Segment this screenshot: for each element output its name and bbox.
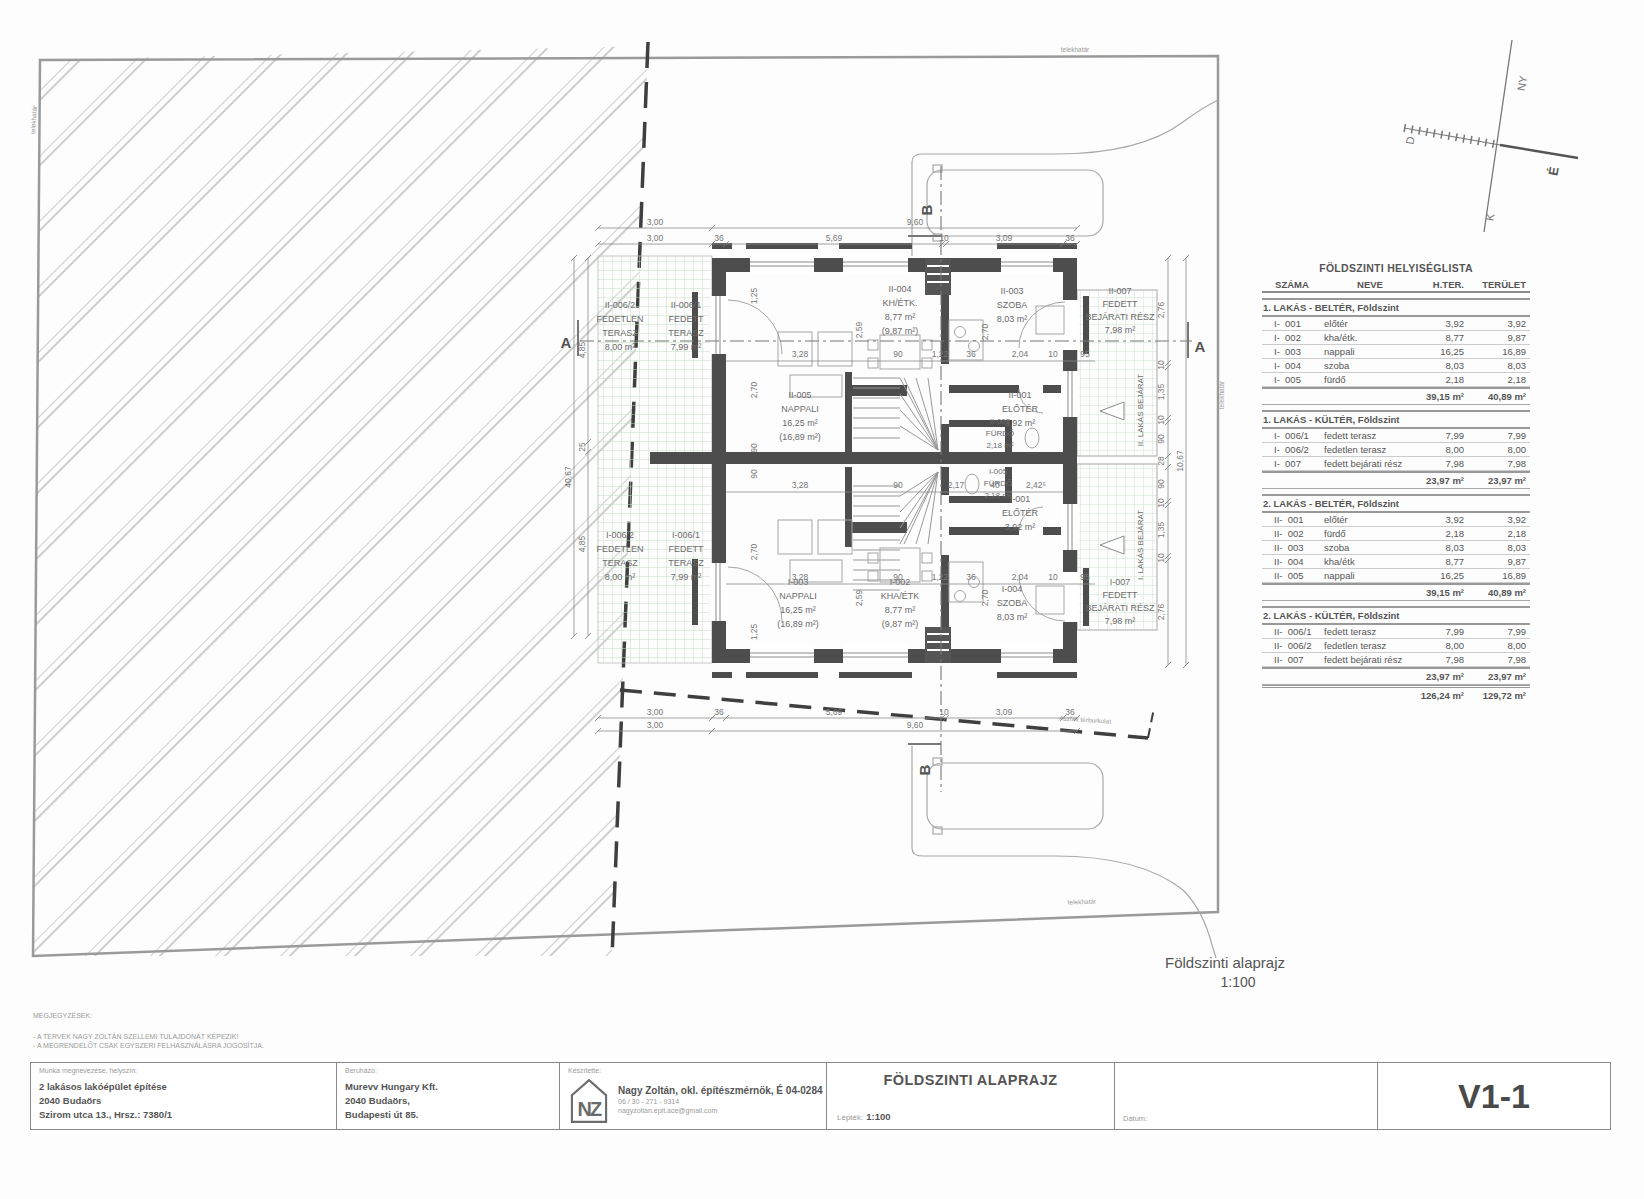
room-label: 8,77 m² (885, 605, 916, 615)
table-row: I- 007fedett bejárati rész7,987,98 (1262, 457, 1530, 471)
room-label: FEDETT (669, 544, 705, 554)
section-subtotal: 23,97 m²23,97 m² (1262, 667, 1530, 685)
room-label: 7,98 m² (1105, 616, 1136, 626)
table-row: II- 006/1fedett terasz7,997,99 (1262, 625, 1530, 639)
compass-north: É (1545, 165, 1561, 176)
entrance-label-1: I. LAKÁS BEJÁRAT (1136, 510, 1145, 580)
dim: 4,85 (577, 535, 587, 552)
party-wall (650, 452, 1077, 464)
dim: 10 (1156, 360, 1166, 370)
table-row: I- 006/1fedett terasz7,997,99 (1262, 429, 1530, 443)
notes: MEGJEGYZÉSEK: - A TERVEK NAGY ZOLTÁN SZE… (33, 1012, 264, 1049)
room-label: TERASZ (668, 558, 704, 568)
dim: 2,70 (980, 589, 990, 606)
dim: 90 (749, 469, 759, 479)
table-row: II- 001előtér3,923,92 (1262, 513, 1530, 527)
drawing-sheet: telekhatár telekhatár telekhatár telekha… (0, 0, 1644, 1199)
boundary-label-left: telekhatár (29, 105, 38, 135)
room-label: FEDETT (669, 314, 705, 324)
dim: 2,42⁵ (1026, 480, 1046, 490)
dim: 2,70 (749, 543, 759, 560)
entrance-label-2: II. LAKÁS BEJÁRAT (1136, 374, 1145, 446)
dim: 1,35 (1156, 383, 1166, 400)
table-row: I- 006/2fedetlen terasz8,008,00 (1262, 443, 1530, 457)
date-label: Dátum: (1123, 1114, 1147, 1123)
dim: 25 (577, 442, 587, 452)
section-heading: 1. LAKÁS - KÜLTÉR, Földszint (1262, 410, 1530, 429)
room-label: TERASZ (668, 328, 704, 338)
title-block-client: Beruházó: Murevv Hungary Kft. 2040 Budaö… (336, 1063, 559, 1129)
dim: 2,59 (854, 589, 864, 606)
dim: 2,04 (1012, 349, 1029, 359)
room-label: II-005 (788, 390, 811, 400)
dim: 9,60 (907, 720, 924, 730)
dim: 1,22 (932, 572, 949, 582)
room-label: II-001 (1008, 390, 1031, 400)
table-row: II- 007fedett bejárati rész7,987,98 (1262, 653, 1530, 667)
drawing-title: FÖLDSZINTI ALAPRAJZ (827, 1072, 1114, 1088)
room-label: I-006/2 (606, 530, 634, 540)
dim: 1,25 (749, 623, 759, 640)
client-line: 2040 Budaörs, (345, 1094, 438, 1108)
title-block-drawing: FÖLDSZINTI ALAPRAJZ Lépték:1:100 (826, 1063, 1114, 1129)
table-row: II- 004kha/étk8,779,87 (1262, 555, 1530, 569)
note-line: - A TERVEK NAGY ZOLTÁN SZELLEMI TULAJDON… (33, 1033, 264, 1040)
room-label: TERASZ (602, 328, 638, 338)
room-label: ELŐTÉR (1002, 508, 1039, 518)
dim: 40 (990, 480, 1000, 490)
room-label: II-006/1 (671, 300, 702, 310)
col-hter: H.TER. (1418, 279, 1468, 290)
room-label: ELŐTÉR (1002, 404, 1039, 414)
section-heading: 2. LAKÁS - KÜLTÉR, Földszint (1262, 606, 1530, 625)
dim: 3,09 (996, 233, 1013, 243)
room-label: 7,99 m² (671, 342, 702, 352)
dim: 3,00 (647, 233, 664, 243)
compass-west: NY (1515, 74, 1530, 92)
car-outline-bottom (927, 763, 1103, 829)
scale-value: 1:100 (866, 1111, 890, 1122)
architect-email: nagyzoltan.epit.ace@gmail.com (618, 1107, 823, 1114)
dim: 1,35 (1156, 521, 1166, 538)
section-heading: 2. LAKÁS - BELTÉR, Földszint (1262, 494, 1530, 513)
room-label: NAPPALI (779, 591, 816, 601)
dim: 90 (893, 572, 903, 582)
room-label: SZOBA (997, 300, 1028, 310)
dim: 3,28 (792, 480, 809, 490)
dim: 10 (1156, 415, 1166, 425)
col-terulet: TERÜLET (1468, 279, 1530, 290)
compass-east: K (1484, 212, 1497, 222)
driveway-bottom (912, 746, 1216, 958)
room-label: II-004 (888, 284, 911, 294)
dim: 2,70 (749, 381, 759, 398)
room-label: 2,18 m² (986, 441, 1013, 450)
room-label: (9,87 m²) (882, 326, 919, 336)
dim: 28 (1156, 456, 1166, 466)
table-row: II- 002fürdő2,182,18 (1262, 527, 1530, 541)
room-label: 8,03 m² (997, 612, 1028, 622)
dim: 3,09 (996, 707, 1013, 717)
note-line: - A MEGRENDELŐT CSAK EGYSZERI FELHASZNÁL… (33, 1042, 264, 1049)
dim: 90 (1156, 479, 1166, 489)
room-label: 16,25 m² (782, 418, 818, 428)
dim: 36 (1065, 233, 1075, 243)
table-row: I- 004szoba8,038,03 (1262, 359, 1530, 373)
project-line: Szirom utca 13., Hrsz.: 7380/1 (39, 1108, 172, 1122)
table-row: II- 003szoba8,038,03 (1262, 541, 1530, 555)
section-subtotal: 23,97 m²23,97 m² (1262, 471, 1530, 489)
room-label: II-007 (1108, 286, 1131, 296)
client-line: Murevv Hungary Kft. (345, 1080, 438, 1094)
architect-phone: 06 / 30 - 271 - 9314 (618, 1098, 823, 1105)
dim: 90 (1156, 434, 1166, 444)
section-heading: 1. LAKÁS - BELTÉR, Földszint (1262, 298, 1530, 317)
dim: 5,69 (826, 707, 843, 717)
table-row: I- 001előtér3,923,92 (1262, 317, 1530, 331)
section-a-right: A (1195, 338, 1206, 355)
dim: 3,00 (647, 720, 664, 730)
title-block: Munka megnevezése, helyszín: 2 lakásos l… (30, 1062, 1611, 1130)
dim: 5,69 (826, 233, 843, 243)
dim: 40,67 (563, 466, 573, 488)
dim: 2,17 (948, 480, 965, 490)
caption-title: Földszinti alaprajz (1120, 954, 1330, 971)
dim: 2,04 (1012, 572, 1029, 582)
neighbour-plot-hatch (33, 46, 648, 956)
room-label: 8,77 m² (885, 312, 916, 322)
dim: 4,85 (577, 341, 587, 358)
dim: 90 (749, 443, 759, 453)
car-outline-top (927, 170, 1103, 236)
room-label: FEDETLEN (596, 544, 643, 554)
dim: 90 (893, 349, 903, 359)
dim: 9,60 (907, 217, 924, 227)
room-label: 7,98 m² (1105, 325, 1136, 335)
room-label: I-004 (1002, 584, 1023, 594)
boundary-label-bottom: telekhatár (1068, 897, 1098, 905)
title-block-project: Munka megnevezése, helyszín: 2 lakásos l… (31, 1063, 336, 1129)
dim: 10 (1156, 553, 1166, 563)
author-label: Készítette: (568, 1067, 601, 1074)
title-block-author: Készítette: NZ Nagy Zoltán, okl. építész… (559, 1063, 826, 1129)
dim: 36 (966, 572, 976, 582)
room-label: KH/ÉTK. (882, 298, 917, 308)
project-line: 2040 Budaörs (39, 1094, 172, 1108)
compass-south: D (1403, 135, 1416, 145)
room-label: II-006/2 (605, 300, 636, 310)
client-label: Beruházó: (345, 1067, 377, 1074)
room-label: I-007 (1110, 577, 1131, 587)
dim: 10 (1156, 498, 1166, 508)
table-row: II- 006/2fedetlen terasz8,008,00 (1262, 639, 1530, 653)
project-line: 2 lakásos lakóépület építése (39, 1080, 172, 1094)
room-label: II-003 (1000, 286, 1023, 296)
room-label: I-001 (1010, 494, 1031, 504)
room-label: 16,25 m² (780, 605, 816, 615)
section-a-left: A (561, 334, 572, 351)
room-label: BEJÁRATI RÉSZ (1086, 312, 1155, 322)
logo-text: NZ (578, 1098, 602, 1120)
room-label: FEDETT (1103, 590, 1139, 600)
room-label: 8,00 m² (605, 342, 636, 352)
room-label: FEDETLEN (596, 314, 643, 324)
dim: 3,00 (647, 217, 664, 227)
room-label: (9,87 m²) (882, 619, 919, 629)
dim: 95 (1080, 349, 1090, 359)
room-label: FEDETT (1103, 299, 1139, 309)
dim: 95 (1080, 572, 1090, 582)
dim: 2,76 (1156, 301, 1166, 318)
room-label: II-002 (990, 417, 1011, 426)
room-label: I-006/1 (672, 530, 700, 540)
room-label: I-005 (989, 467, 1008, 476)
table-row: I- 003nappali16,2516,89 (1262, 345, 1530, 359)
architect-name: Nagy Zoltán, okl. építészmérnök, É 04-02… (618, 1085, 823, 1096)
dim: 2,59 (854, 321, 864, 338)
table-title: FÖLDSZINTI HELYISÉGLISTA (1262, 262, 1530, 274)
section-subtotal: 39,15 m²40,89 m² (1262, 583, 1530, 601)
col-szama: SZÁMA (1262, 279, 1322, 290)
dim: 3,00 (647, 707, 664, 717)
dim: 10 (939, 707, 949, 717)
dim: 36 (1065, 707, 1075, 717)
section-b-top: B (918, 204, 935, 215)
table-row: I- 005fürdő2,182,18 (1262, 373, 1530, 387)
dim: 3,28 (792, 572, 809, 582)
sheet-number: V1-1 (1377, 1063, 1610, 1129)
room-label: 7,99 m² (671, 572, 702, 582)
boundary-label-top: telekhatár (1061, 46, 1090, 53)
room-label: 3,92 m² (1005, 522, 1036, 532)
room-label: BEJÁRATI RÉSZ (1086, 603, 1155, 613)
dim: 1,25 (749, 287, 759, 304)
dim: 36 (714, 233, 724, 243)
room-label: KHA/ÉTK (881, 591, 920, 601)
section-b-bottom: B (916, 764, 933, 775)
dim: 2,70 (980, 323, 990, 340)
client-line: Budapesti út 85. (345, 1108, 438, 1122)
dim: 10,67 (1175, 450, 1185, 472)
dim: 36 (714, 707, 724, 717)
dim: 90 (893, 480, 903, 490)
table-header: SZÁMA NEVE H.TER. TERÜLET (1262, 278, 1530, 293)
room-label: (16,89 m²) (777, 619, 819, 629)
caption-scale: 1:100 (1120, 974, 1330, 990)
table-row: II- 005nappali16,2516,89 (1262, 569, 1530, 583)
col-neve: NEVE (1322, 279, 1418, 290)
room-label: (16,89 m²) (779, 432, 821, 442)
room-label: FÜRDŐ (986, 429, 1014, 438)
project-label: Munka megnevezése, helyszín: (39, 1067, 137, 1074)
boundary-label-right: telekhatár (1218, 380, 1225, 409)
table-row: I- 002kha/étk.8,779,87 (1262, 331, 1530, 345)
dim: 1,22 (932, 349, 949, 359)
dim: 3,28 (792, 349, 809, 359)
dim: 36 (966, 349, 976, 359)
room-label: 8,03 m² (997, 314, 1028, 324)
dim: 2,76 (1156, 603, 1166, 620)
dim: 10 (939, 233, 949, 243)
title-block-date: Dátum: (1114, 1063, 1377, 1129)
table-total: 126,24 m²129,72 m² (1262, 685, 1530, 703)
notes-heading: MEGJEGYZÉSEK: (33, 1012, 264, 1019)
room-label: NAPPALI (781, 404, 818, 414)
scale-label: Lépték: (837, 1113, 863, 1122)
plan-caption: Földszinti alaprajz 1:100 (1120, 954, 1330, 990)
compass-icon: NY K D É (1403, 40, 1578, 232)
room-label: TERASZ (602, 558, 638, 568)
room-label: 8,00 m² (605, 572, 636, 582)
room-label: SZOBA (997, 598, 1028, 608)
room-list-table: FÖLDSZINTI HELYISÉGLISTA SZÁMA NEVE H.TE… (1262, 262, 1530, 703)
section-subtotal: 39,15 m²40,89 m² (1262, 387, 1530, 405)
dim: 10 (1048, 349, 1058, 359)
dim: 10 (1048, 572, 1058, 582)
